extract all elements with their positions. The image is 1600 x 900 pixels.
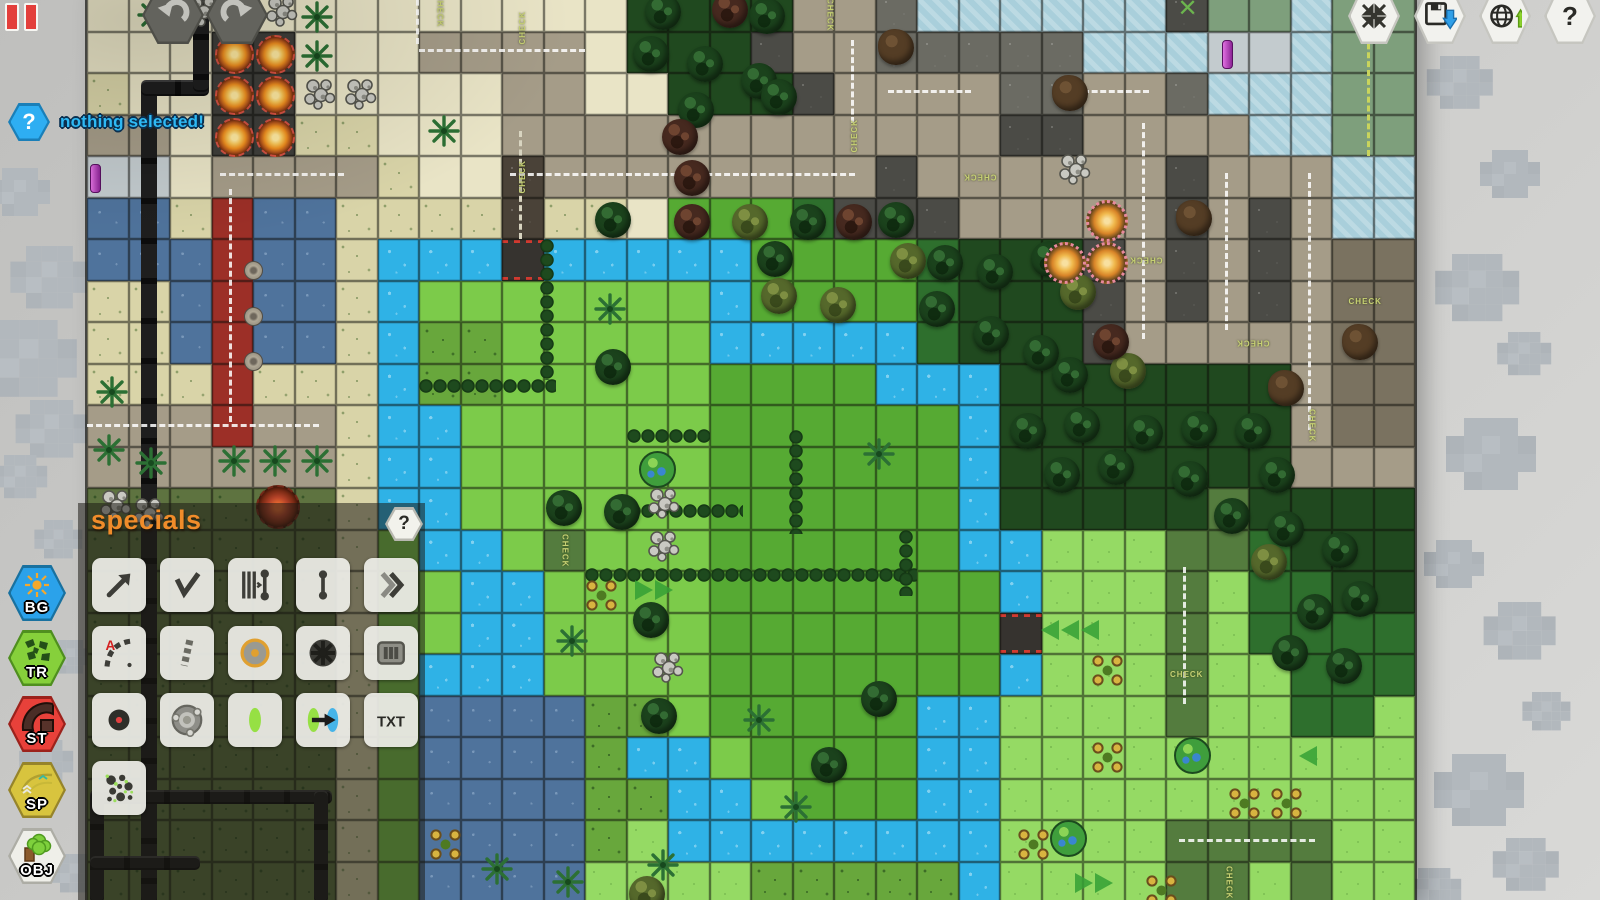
map-tile[interactable] <box>793 364 835 406</box>
map-tile[interactable] <box>544 737 586 779</box>
map-tile[interactable] <box>1332 862 1374 900</box>
map-tile[interactable] <box>1332 198 1374 240</box>
tree-object[interactable] <box>1098 449 1134 485</box>
map-tile[interactable] <box>710 156 752 198</box>
map-tile[interactable] <box>1166 779 1208 821</box>
map-tile[interactable] <box>1166 32 1208 74</box>
map-tile[interactable] <box>419 737 461 779</box>
map-tile[interactable] <box>585 737 627 779</box>
tree-object[interactable] <box>1052 357 1088 393</box>
gear-orb[interactable] <box>1086 242 1128 284</box>
map-tile[interactable] <box>170 281 212 323</box>
map-tile[interactable] <box>959 447 1001 489</box>
map-tile[interactable] <box>834 156 876 198</box>
map-tile[interactable] <box>917 862 959 900</box>
map-tile[interactable] <box>1374 488 1416 530</box>
map-tile[interactable] <box>751 862 793 900</box>
map-tile[interactable] <box>461 115 503 157</box>
map-tile[interactable] <box>1291 281 1333 323</box>
map-tile[interactable] <box>378 405 420 447</box>
tool-path-a-curve[interactable]: A <box>92 626 146 680</box>
map-tile[interactable] <box>1083 820 1125 862</box>
map-tile[interactable] <box>1332 737 1374 779</box>
map-tile[interactable] <box>336 156 378 198</box>
map-tile[interactable] <box>1125 654 1167 696</box>
map-tile[interactable] <box>1332 405 1374 447</box>
map-tile[interactable] <box>461 156 503 198</box>
map-tile[interactable] <box>461 239 503 281</box>
tool-start-gate[interactable] <box>228 558 282 612</box>
flower-cluster[interactable] <box>1228 787 1261 820</box>
map-tile[interactable] <box>710 737 752 779</box>
tool-teleporter[interactable] <box>296 693 350 747</box>
palm-tree[interactable] <box>646 848 680 882</box>
map-tile[interactable] <box>917 322 959 364</box>
map-tile[interactable] <box>1000 571 1042 613</box>
map-tile[interactable] <box>1374 779 1416 821</box>
map-tile[interactable] <box>419 322 461 364</box>
hedge-row[interactable] <box>627 428 710 444</box>
map-tile[interactable] <box>627 239 669 281</box>
map-tile[interactable] <box>419 530 461 572</box>
map-tile[interactable] <box>461 405 503 447</box>
map-tile[interactable] <box>1291 239 1333 281</box>
map-tile[interactable] <box>1000 73 1042 115</box>
map-tile[interactable] <box>585 654 627 696</box>
map-tile[interactable] <box>876 364 918 406</box>
map-tile[interactable] <box>959 862 1001 900</box>
map-tile[interactable] <box>1249 239 1291 281</box>
map-tile[interactable] <box>1042 779 1084 821</box>
tool-barrier-stripe[interactable] <box>160 626 214 680</box>
tree-object[interactable] <box>1172 461 1208 497</box>
map-tile[interactable] <box>502 571 544 613</box>
map-tile[interactable] <box>336 447 378 489</box>
palm-tree[interactable] <box>134 446 168 480</box>
map-tile[interactable] <box>585 405 627 447</box>
map-tile[interactable] <box>710 405 752 447</box>
map-tile[interactable] <box>1000 32 1042 74</box>
map-tile[interactable] <box>461 447 503 489</box>
map-tile[interactable] <box>502 115 544 157</box>
map-tile[interactable] <box>1166 613 1208 655</box>
map-tile[interactable] <box>834 239 876 281</box>
map-tile[interactable] <box>1208 281 1250 323</box>
map-tile[interactable] <box>1125 115 1167 157</box>
map-tile[interactable] <box>253 198 295 240</box>
tree-object[interactable] <box>641 698 677 734</box>
map-tile[interactable] <box>170 322 212 364</box>
map-tile[interactable] <box>1000 447 1042 489</box>
tool-grate[interactable] <box>364 626 418 680</box>
tree-object[interactable] <box>790 204 826 240</box>
tool-boost-chevrons[interactable] <box>364 558 418 612</box>
map-tile[interactable] <box>336 281 378 323</box>
map-tile[interactable] <box>627 156 669 198</box>
map-tile[interactable] <box>710 115 752 157</box>
save-button[interactable] <box>1414 0 1466 44</box>
map-tile[interactable] <box>1042 488 1084 530</box>
map-tile[interactable] <box>751 613 793 655</box>
flower-cluster[interactable] <box>429 828 462 861</box>
map-tile[interactable] <box>1208 530 1250 572</box>
palm-tree[interactable] <box>300 0 334 34</box>
map-tile[interactable] <box>793 530 835 572</box>
map-tile[interactable] <box>1042 530 1084 572</box>
map-tile[interactable] <box>959 654 1001 696</box>
map-tile[interactable] <box>793 322 835 364</box>
map-tile[interactable] <box>876 156 918 198</box>
map-tile[interactable] <box>336 364 378 406</box>
map-tile[interactable] <box>1208 0 1250 32</box>
map-tile[interactable] <box>87 0 129 32</box>
map-tile[interactable] <box>834 779 876 821</box>
tree-object[interactable] <box>1235 413 1271 449</box>
tree-object[interactable] <box>633 602 669 638</box>
map-tile[interactable] <box>419 447 461 489</box>
map-tile[interactable] <box>1249 0 1291 32</box>
map-tile[interactable] <box>1291 156 1333 198</box>
palm-tree[interactable] <box>92 433 126 467</box>
earth-orb[interactable] <box>639 451 676 488</box>
map-tile[interactable] <box>502 737 544 779</box>
map-tile[interactable] <box>1332 156 1374 198</box>
map-tile[interactable] <box>917 156 959 198</box>
map-tile[interactable] <box>336 32 378 74</box>
map-tile[interactable] <box>710 779 752 821</box>
tool-tire-wheel[interactable] <box>296 626 350 680</box>
map-tile[interactable] <box>1208 115 1250 157</box>
map-tile[interactable] <box>1083 696 1125 738</box>
map-tile[interactable] <box>585 0 627 32</box>
map-tile[interactable] <box>295 115 337 157</box>
map-tile[interactable] <box>170 198 212 240</box>
tree-object[interactable] <box>861 681 897 717</box>
map-tile[interactable] <box>1083 779 1125 821</box>
map-tile[interactable] <box>834 530 876 572</box>
fire-orb[interactable] <box>256 35 295 74</box>
tree-object[interactable] <box>1272 635 1308 671</box>
map-tile[interactable] <box>461 198 503 240</box>
direction-arrow[interactable] <box>631 577 677 603</box>
map-tile[interactable] <box>959 0 1001 32</box>
map-tile[interactable] <box>212 198 254 240</box>
map-tile[interactable] <box>585 613 627 655</box>
map-tile[interactable] <box>1166 239 1208 281</box>
tool-camo-splat[interactable] <box>92 761 146 815</box>
map-tile[interactable] <box>917 820 959 862</box>
map-tile[interactable] <box>419 488 461 530</box>
map-tile[interactable] <box>1000 654 1042 696</box>
map-tile[interactable] <box>544 0 586 32</box>
map-tile[interactable] <box>295 156 337 198</box>
map-tile[interactable] <box>1083 488 1125 530</box>
palm-tree[interactable] <box>779 790 813 824</box>
map-tile[interactable] <box>793 156 835 198</box>
map-tile[interactable] <box>585 156 627 198</box>
map-tile[interactable] <box>544 405 586 447</box>
map-tile[interactable] <box>378 239 420 281</box>
tool-turret-mount[interactable] <box>160 693 214 747</box>
palm-tree[interactable] <box>551 865 585 899</box>
publish-button[interactable] <box>1479 0 1531 44</box>
map-tile[interactable] <box>751 488 793 530</box>
map-tile[interactable] <box>170 239 212 281</box>
map-tile[interactable] <box>461 613 503 655</box>
sidebar-item-st[interactable]: ST <box>8 696 66 752</box>
tree-object[interactable] <box>1044 457 1080 493</box>
map-tile[interactable] <box>336 322 378 364</box>
map-tile[interactable] <box>336 405 378 447</box>
map-tile[interactable] <box>1249 156 1291 198</box>
map-tile[interactable] <box>461 530 503 572</box>
map-tile[interactable] <box>502 530 544 572</box>
map-tile[interactable] <box>959 571 1001 613</box>
map-tile[interactable] <box>461 73 503 115</box>
map-tile[interactable] <box>876 779 918 821</box>
map-tile[interactable] <box>1291 0 1333 32</box>
map-tile[interactable] <box>1374 862 1416 900</box>
map-tile[interactable] <box>710 281 752 323</box>
map-tile[interactable] <box>1208 737 1250 779</box>
map-tile[interactable] <box>1125 0 1167 32</box>
map-tile[interactable] <box>212 364 254 406</box>
tool-landmine[interactable] <box>228 626 282 680</box>
map-tile[interactable] <box>295 364 337 406</box>
map-tile[interactable] <box>710 447 752 489</box>
map-tile[interactable] <box>461 0 503 32</box>
map-tile[interactable] <box>959 820 1001 862</box>
tool-spawn-dot[interactable] <box>92 693 146 747</box>
map-tile[interactable] <box>1000 488 1042 530</box>
map-tile[interactable] <box>751 530 793 572</box>
map-tile[interactable] <box>461 696 503 738</box>
map-tile[interactable] <box>917 530 959 572</box>
map-tile[interactable] <box>1166 530 1208 572</box>
map-tile[interactable] <box>461 571 503 613</box>
hedge-row[interactable] <box>898 530 914 596</box>
map-tile[interactable] <box>378 156 420 198</box>
map-tile[interactable] <box>1249 862 1291 900</box>
map-tile[interactable] <box>1332 820 1374 862</box>
map-tile[interactable] <box>1374 322 1416 364</box>
map-tile[interactable] <box>502 779 544 821</box>
map-tile[interactable] <box>1374 654 1416 696</box>
map-tile[interactable] <box>1208 156 1250 198</box>
tree-object[interactable] <box>919 291 955 327</box>
palm-tree[interactable] <box>593 292 627 326</box>
map-tile[interactable] <box>959 530 1001 572</box>
map-tile[interactable] <box>1374 73 1416 115</box>
map-tile[interactable] <box>959 737 1001 779</box>
map-tile[interactable] <box>87 281 129 323</box>
rock-pile[interactable] <box>1057 151 1092 186</box>
map-tile[interactable] <box>959 779 1001 821</box>
tree-object[interactable] <box>878 202 914 238</box>
map-tile[interactable] <box>1374 530 1416 572</box>
map-tile[interactable] <box>793 862 835 900</box>
map-tile[interactable] <box>917 32 959 74</box>
tree-object[interactable] <box>977 254 1013 290</box>
flower-cluster[interactable] <box>1091 654 1124 687</box>
flower-cluster[interactable] <box>1091 741 1124 774</box>
tree-object[interactable] <box>662 119 698 155</box>
map-tile[interactable] <box>834 488 876 530</box>
dirt-mound[interactable] <box>1176 200 1212 236</box>
map-tile[interactable] <box>751 654 793 696</box>
map-tile[interactable] <box>793 73 835 115</box>
map-tile[interactable] <box>627 73 669 115</box>
map-tile[interactable] <box>1125 73 1167 115</box>
map-tile[interactable] <box>212 156 254 198</box>
map-tile[interactable] <box>1291 73 1333 115</box>
map-tile[interactable] <box>170 447 212 489</box>
map-tile[interactable] <box>585 820 627 862</box>
status-question-hex[interactable]: ? <box>8 103 50 141</box>
map-tile[interactable] <box>544 73 586 115</box>
map-tile[interactable] <box>876 613 918 655</box>
rock-pile[interactable] <box>264 0 299 28</box>
map-tile[interactable] <box>378 322 420 364</box>
map-tile[interactable] <box>1083 571 1125 613</box>
map-tile[interactable] <box>502 447 544 489</box>
map-tile[interactable] <box>419 654 461 696</box>
map-tile[interactable] <box>834 820 876 862</box>
map-tile[interactable] <box>1249 115 1291 157</box>
map-tile[interactable] <box>1249 737 1291 779</box>
hedge-row[interactable] <box>788 430 804 534</box>
tree-object[interactable] <box>604 494 640 530</box>
map-tile[interactable] <box>419 156 461 198</box>
map-tile[interactable] <box>585 32 627 74</box>
map-tile[interactable] <box>834 862 876 900</box>
rock-pile[interactable] <box>646 528 681 563</box>
tree-object[interactable] <box>546 490 582 526</box>
map-tile[interactable] <box>336 239 378 281</box>
map-tile[interactable] <box>1374 364 1416 406</box>
map-tile[interactable] <box>336 198 378 240</box>
map-tile[interactable] <box>378 0 420 32</box>
map-tile[interactable] <box>585 779 627 821</box>
map-tile[interactable] <box>1249 696 1291 738</box>
map-tile[interactable] <box>378 447 420 489</box>
direction-arrow[interactable] <box>1295 743 1321 769</box>
map-tile[interactable] <box>1291 322 1333 364</box>
map-tile[interactable] <box>627 198 669 240</box>
map-tile[interactable] <box>585 862 627 900</box>
map-tile[interactable] <box>87 198 129 240</box>
tree-object[interactable] <box>973 316 1009 352</box>
map-tile[interactable] <box>544 779 586 821</box>
map-tile[interactable] <box>710 239 752 281</box>
tree-object[interactable] <box>1322 532 1358 568</box>
map-tile[interactable] <box>710 322 752 364</box>
map-tile[interactable] <box>751 820 793 862</box>
map-tile[interactable] <box>710 364 752 406</box>
gear-orb[interactable] <box>1086 200 1128 242</box>
palm-tree[interactable] <box>95 375 129 409</box>
tool-portal-oval[interactable] <box>228 693 282 747</box>
flower-cluster[interactable] <box>1017 828 1050 861</box>
map-tile[interactable] <box>1125 281 1167 323</box>
tree-object[interactable] <box>836 204 872 240</box>
fire-orb[interactable] <box>215 76 254 115</box>
map-tile[interactable] <box>710 613 752 655</box>
tree-object[interactable] <box>1181 411 1217 447</box>
map-tile[interactable] <box>295 322 337 364</box>
map-tile[interactable] <box>1000 198 1042 240</box>
flower-cluster[interactable] <box>1145 874 1178 900</box>
map-tile[interactable] <box>1208 447 1250 489</box>
map-tile[interactable] <box>959 613 1001 655</box>
rock-pile[interactable] <box>302 76 337 111</box>
map-tile[interactable] <box>87 322 129 364</box>
map-tile[interactable] <box>1332 488 1374 530</box>
map-tile[interactable] <box>378 73 420 115</box>
sidebar-item-bg[interactable]: BG <box>8 565 66 621</box>
map-tile[interactable] <box>502 239 544 281</box>
direction-arrow[interactable] <box>1037 617 1103 643</box>
map-tile[interactable] <box>1374 820 1416 862</box>
map-tile[interactable] <box>1000 862 1042 900</box>
map-tile[interactable] <box>876 322 918 364</box>
dirt-mound[interactable] <box>878 29 914 65</box>
map-tile[interactable] <box>544 820 586 862</box>
map-tile[interactable] <box>461 32 503 74</box>
map-tile[interactable] <box>1125 198 1167 240</box>
map-tile[interactable] <box>419 613 461 655</box>
map-tile[interactable] <box>461 654 503 696</box>
map-tile[interactable] <box>668 322 710 364</box>
map-tile[interactable] <box>544 32 586 74</box>
map-tile[interactable] <box>1249 281 1291 323</box>
palm-tree[interactable] <box>258 444 292 478</box>
map-tile[interactable] <box>419 571 461 613</box>
tree-object[interactable] <box>1326 648 1362 684</box>
fire-orb[interactable] <box>256 118 295 157</box>
tree-object[interactable] <box>1268 511 1304 547</box>
map-tile[interactable] <box>502 488 544 530</box>
map-tile[interactable] <box>1125 530 1167 572</box>
map-tile[interactable] <box>461 737 503 779</box>
hedge-row[interactable] <box>627 503 743 519</box>
map-tile[interactable] <box>253 364 295 406</box>
map-tile[interactable] <box>710 862 752 900</box>
map-tile[interactable] <box>1374 696 1416 738</box>
palm-tree[interactable] <box>300 39 334 73</box>
map-tile[interactable] <box>793 613 835 655</box>
tree-object[interactable] <box>732 204 768 240</box>
tree-object[interactable] <box>633 36 669 72</box>
map-tile[interactable] <box>627 737 669 779</box>
map-tile[interactable] <box>585 696 627 738</box>
map-tile[interactable] <box>917 696 959 738</box>
map-tile[interactable] <box>502 281 544 323</box>
map-tile[interactable] <box>959 696 1001 738</box>
map-tile[interactable] <box>1374 239 1416 281</box>
tool-text-label[interactable]: TXT <box>364 693 418 747</box>
gear-orb[interactable] <box>1044 242 1086 284</box>
map-tile[interactable] <box>668 779 710 821</box>
map-tile[interactable] <box>793 115 835 157</box>
tree-object[interactable] <box>674 204 710 240</box>
map-tile[interactable] <box>1166 115 1208 157</box>
map-tile[interactable] <box>959 73 1001 115</box>
manhole-cover[interactable] <box>244 261 263 280</box>
map-tile[interactable] <box>1166 73 1208 115</box>
map-tile[interactable] <box>336 0 378 32</box>
tool-checkpoint-check[interactable] <box>160 558 214 612</box>
